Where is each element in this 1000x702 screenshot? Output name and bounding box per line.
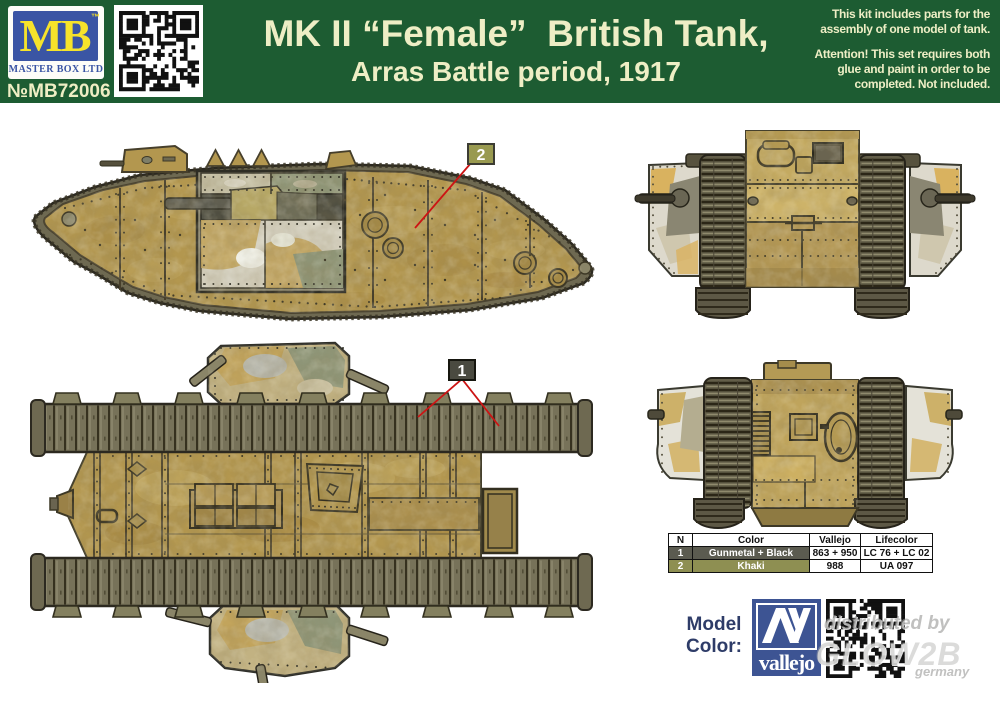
svg-text:vallejo: vallejo [759, 650, 815, 675]
svg-text:2: 2 [477, 147, 486, 164]
svg-text:1: 1 [458, 363, 467, 380]
